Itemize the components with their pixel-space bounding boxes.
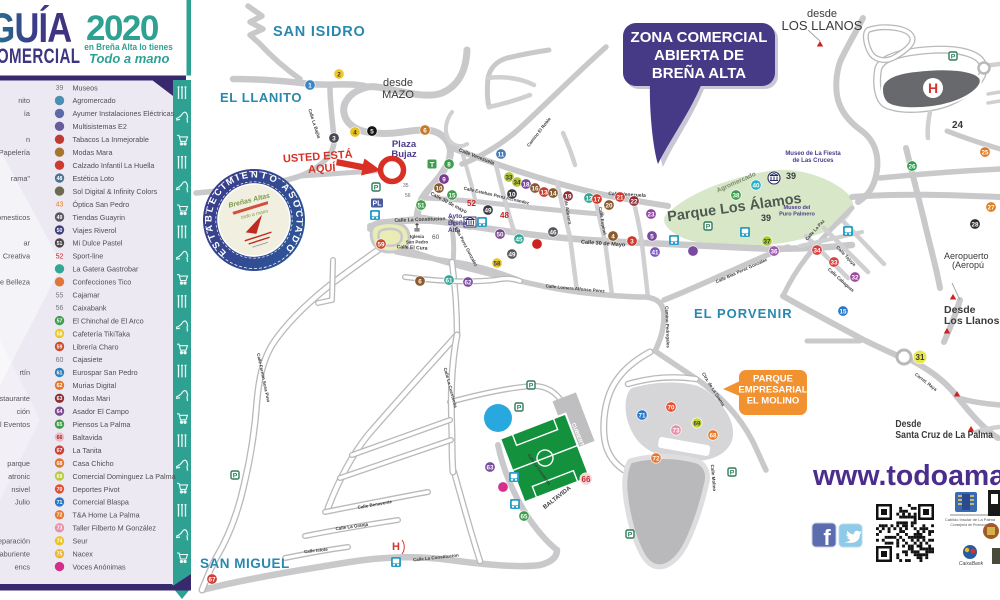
svg-text:64: 64 [57, 409, 63, 415]
svg-text:Casa Chicho: Casa Chicho [73, 459, 114, 468]
svg-text:Seur: Seur [73, 537, 89, 546]
svg-text:52: 52 [56, 253, 64, 260]
svg-text:Breña: Breña [448, 220, 467, 227]
svg-text:65: 65 [520, 513, 528, 520]
svg-text:Tabacos La Inmejorable: Tabacos La Inmejorable [73, 135, 149, 144]
svg-text:Tiendas Guayrin: Tiendas Guayrin [73, 213, 125, 222]
svg-text:Ayto.: Ayto. [448, 213, 464, 220]
svg-text:P: P [517, 405, 522, 412]
svg-text:33: 33 [830, 259, 838, 266]
svg-text:27: 27 [987, 204, 995, 211]
svg-text:atronic: atronic [8, 472, 30, 481]
svg-text:Modas Mari: Modas Mari [73, 394, 111, 403]
svg-text:Alta: Alta [448, 227, 461, 234]
svg-text:70: 70 [667, 404, 675, 411]
svg-text:CaixaBank: CaixaBank [959, 561, 984, 567]
svg-text:sas Restaurante: sas Restaurante [0, 394, 30, 403]
svg-text:Puro Palmero: Puro Palmero [779, 212, 815, 218]
svg-text:f: f [823, 525, 831, 550]
svg-text:Cafetería TikiTaka: Cafetería TikiTaka [73, 329, 131, 338]
svg-text:50: 50 [57, 228, 63, 234]
svg-text:nito: nito [18, 96, 30, 105]
svg-text:LOS LLANOS: LOS LLANOS [782, 18, 863, 33]
svg-text:18: 18 [522, 181, 530, 188]
svg-text:6: 6 [418, 278, 422, 285]
svg-text:Iglesia: Iglesia [410, 234, 425, 239]
svg-text:56: 56 [405, 193, 411, 199]
svg-text:39: 39 [56, 85, 64, 92]
svg-text:66: 66 [582, 475, 591, 484]
svg-text:Nacex: Nacex [73, 550, 94, 559]
svg-text:50: 50 [496, 231, 504, 238]
svg-text:Ayumer Instalaciones Eléctrica: Ayumer Instalaciones Eléctricas [73, 109, 175, 118]
svg-text:61: 61 [57, 370, 63, 376]
svg-text:41: 41 [651, 249, 659, 256]
svg-text:H: H [928, 80, 938, 96]
svg-text:13: 13 [540, 189, 548, 196]
svg-text:60: 60 [432, 234, 440, 241]
svg-text:P: P [628, 532, 633, 539]
svg-text:66: 66 [57, 435, 63, 441]
svg-text:20: 20 [605, 202, 613, 209]
svg-text:Cajamar: Cajamar [73, 291, 101, 300]
svg-text:24: 24 [952, 120, 964, 131]
svg-text:Santa Cruz de La Palma: Santa Cruz de La Palma [895, 429, 993, 441]
svg-text:61: 61 [445, 277, 453, 284]
svg-text:ía: ía [24, 109, 31, 118]
svg-text:EL MOLINO: EL MOLINO [747, 396, 800, 407]
svg-text:Taller Filberto M González: Taller Filberto M González [73, 524, 157, 533]
svg-text:ción: ción [17, 407, 30, 416]
svg-text:48: 48 [500, 211, 509, 220]
svg-text:17: 17 [593, 196, 601, 203]
svg-text:34: 34 [513, 179, 521, 186]
svg-text:56: 56 [56, 305, 64, 312]
svg-text:55: 55 [56, 292, 64, 299]
svg-text:Consejeria de Promocion: Consejeria de Promocion [950, 523, 989, 527]
svg-text:rama": rama" [11, 174, 31, 183]
svg-text:P: P [233, 473, 238, 480]
svg-text:P: P [706, 224, 711, 231]
svg-text:rtín: rtín [19, 368, 30, 377]
svg-text:Los Llanos: Los Llanos [944, 315, 1000, 327]
svg-text:63: 63 [57, 396, 63, 402]
svg-text:26: 26 [908, 163, 916, 170]
svg-text:Creativa: Creativa [3, 252, 31, 261]
svg-text:59: 59 [377, 241, 385, 248]
svg-text:4: 4 [611, 233, 615, 240]
svg-text:Óptica San Pedro: Óptica San Pedro [73, 200, 130, 209]
svg-text:35: 35 [403, 183, 409, 189]
svg-text:69: 69 [57, 474, 63, 480]
svg-text:6: 6 [423, 127, 427, 134]
svg-text:BREÑA ALTA: BREÑA ALTA [652, 64, 746, 82]
svg-text:SAN ISIDRO: SAN ISIDRO [273, 24, 366, 40]
svg-text:15: 15 [839, 308, 847, 315]
svg-text:T&A Home La Palma: T&A Home La Palma [73, 511, 140, 520]
svg-text:H: H [392, 541, 400, 553]
svg-text:11: 11 [498, 151, 505, 158]
svg-text:AQUÍ: AQUÍ [308, 161, 337, 176]
svg-text:36: 36 [770, 248, 778, 255]
svg-text:Viajes Riverol: Viajes Riverol [73, 226, 117, 235]
svg-text:23: 23 [647, 211, 655, 218]
svg-text:COMERCIAL: COMERCIAL [0, 43, 80, 67]
svg-text:e Belleza: e Belleza [0, 278, 31, 287]
svg-text:70: 70 [57, 487, 63, 493]
svg-text:74: 74 [57, 539, 63, 545]
svg-text:67: 67 [208, 576, 216, 583]
svg-text:ar: ar [24, 239, 31, 248]
svg-text:48: 48 [57, 176, 63, 182]
svg-text:52: 52 [467, 199, 476, 208]
svg-text:49: 49 [508, 251, 516, 258]
svg-text:Museos: Museos [73, 83, 99, 92]
svg-text:La Tanita: La Tanita [73, 446, 102, 455]
svg-text:72: 72 [652, 455, 660, 462]
svg-text:Cabildo Insular de La Palma: Cabildo Insular de La Palma [945, 517, 996, 522]
svg-text:EL PORVENIR: EL PORVENIR [694, 306, 793, 321]
svg-text:Asador El Campo: Asador El Campo [73, 407, 129, 416]
svg-text:Sport-line: Sport-line [73, 252, 104, 261]
svg-text:72: 72 [57, 513, 63, 519]
svg-text:49: 49 [484, 207, 492, 214]
svg-text:1: 1 [308, 82, 312, 89]
svg-text:Murias Digital: Murias Digital [73, 381, 117, 390]
svg-text:Multisistemas E2: Multisistemas E2 [73, 122, 127, 131]
svg-text:71: 71 [57, 500, 63, 506]
svg-text:10: 10 [508, 191, 516, 198]
svg-text:37: 37 [763, 238, 771, 245]
svg-text:Comercial Dominguez La Palma: Comercial Dominguez La Palma [73, 472, 176, 481]
svg-text:SAN MIGUEL: SAN MIGUEL [200, 556, 290, 571]
svg-text:es y reparación: es y reparación [0, 537, 30, 546]
svg-text:P: P [951, 54, 956, 61]
svg-text:9: 9 [442, 176, 446, 183]
svg-text:desde: desde [383, 77, 413, 89]
svg-text:58: 58 [57, 331, 63, 337]
svg-text:28: 28 [971, 221, 979, 228]
svg-text:Baltavida: Baltavida [73, 433, 103, 442]
svg-text:5: 5 [650, 233, 654, 240]
svg-text:69: 69 [693, 420, 701, 427]
svg-text:63: 63 [486, 464, 494, 471]
svg-text:60: 60 [56, 357, 64, 364]
svg-text:n: n [26, 135, 30, 144]
svg-text:62: 62 [57, 383, 63, 389]
svg-text:3: 3 [630, 238, 634, 245]
svg-text:10: 10 [435, 185, 443, 192]
svg-text:Calzado Infantil La Huella: Calzado Infantil La Huella [73, 161, 155, 170]
svg-text:EMPRESARIAL: EMPRESARIAL [738, 385, 807, 396]
svg-text:Cajasiete: Cajasiete [73, 355, 103, 364]
svg-text:EL LLANITO: EL LLANITO [220, 90, 302, 105]
svg-text:43: 43 [56, 202, 64, 209]
svg-text:5: 5 [370, 128, 374, 135]
svg-text:15: 15 [448, 192, 456, 199]
svg-text:Sol Digital & Infinity Colors: Sol Digital & Infinity Colors [73, 187, 158, 196]
svg-text:www.todoamano: www.todoamano [812, 460, 1000, 492]
svg-text:Papelería: Papelería [0, 148, 31, 157]
svg-text:40: 40 [752, 182, 760, 189]
svg-text:(Aeropú: (Aeropú [952, 260, 984, 270]
svg-text:62: 62 [464, 279, 472, 286]
svg-text:MAZO: MAZO [382, 89, 414, 101]
svg-text:al Eventos: al Eventos [0, 420, 30, 429]
svg-text:encs: encs [15, 562, 31, 571]
svg-text:49: 49 [57, 215, 63, 221]
svg-text:71: 71 [638, 412, 646, 419]
svg-text:P: P [730, 470, 735, 477]
svg-text:31: 31 [916, 353, 925, 362]
svg-text:46: 46 [549, 229, 557, 236]
svg-text:45: 45 [515, 236, 523, 243]
svg-text:ctrodomesticos: ctrodomesticos [0, 213, 30, 222]
svg-text:Confecciones Tico: Confecciones Tico [73, 278, 132, 287]
svg-text:Piensos La Palma: Piensos La Palma [73, 420, 131, 429]
svg-text:cos Taburiente: cos Taburiente [0, 550, 30, 559]
svg-text:P: P [374, 185, 379, 192]
svg-text:58: 58 [493, 260, 501, 267]
svg-text:57: 57 [57, 319, 63, 325]
svg-text:Voces Anónimas: Voces Anónimas [73, 562, 127, 571]
svg-text:73: 73 [672, 427, 680, 434]
svg-text:Estética Loto: Estética Loto [73, 174, 115, 183]
svg-text:Museo del: Museo del [784, 205, 811, 211]
svg-text:21: 21 [616, 194, 624, 201]
svg-text:Julio: Julio [15, 498, 30, 507]
svg-text:P: P [529, 383, 534, 390]
svg-text:19: 19 [564, 193, 572, 200]
svg-text:25: 25 [981, 149, 989, 156]
svg-text:38: 38 [732, 192, 740, 199]
svg-text:PARQUE: PARQUE [753, 374, 793, 385]
svg-text:Caixabank: Caixabank [73, 303, 107, 312]
svg-text:Comercial Blaspa: Comercial Blaspa [73, 498, 129, 507]
svg-text:PL: PL [373, 201, 383, 208]
svg-text:73: 73 [57, 526, 63, 532]
svg-text:Mi Dulce Pastel: Mi Dulce Pastel [73, 239, 123, 248]
svg-text:2: 2 [337, 71, 341, 78]
svg-text:de Las Cruces: de Las Cruces [792, 158, 834, 164]
svg-text:32: 32 [851, 274, 859, 281]
svg-text:San Pedro: San Pedro [406, 240, 429, 245]
svg-text:68: 68 [709, 432, 717, 439]
svg-text:Eurospar San Pedro: Eurospar San Pedro [73, 368, 138, 377]
svg-text:14: 14 [549, 190, 557, 197]
svg-text:Todo a mano: Todo a mano [89, 51, 169, 66]
svg-text:39: 39 [761, 213, 771, 223]
svg-text:Museo de La Fiesta: Museo de La Fiesta [785, 151, 841, 157]
svg-text:ABIERTA DE: ABIERTA DE [654, 47, 744, 64]
svg-text:51: 51 [417, 202, 425, 209]
svg-text:51: 51 [57, 241, 63, 247]
svg-text:75: 75 [57, 552, 63, 558]
svg-text:65: 65 [57, 422, 63, 428]
svg-text:16: 16 [531, 185, 539, 192]
svg-text:39: 39 [786, 171, 796, 181]
svg-text:Deportes Pivot: Deportes Pivot [73, 485, 120, 494]
svg-text:Agromercado: Agromercado [73, 96, 116, 105]
svg-text:El Chinchal de El Arco: El Chinchal de El Arco [73, 316, 144, 325]
svg-text:4: 4 [353, 129, 357, 136]
svg-text:parque: parque [7, 459, 30, 468]
svg-text:22: 22 [630, 198, 638, 205]
svg-text:59: 59 [57, 344, 63, 350]
svg-text:67: 67 [57, 448, 63, 454]
svg-text:nsivel: nsivel [11, 485, 30, 494]
svg-text:T: T [430, 160, 435, 169]
svg-text:ZONA COMERCIAL: ZONA COMERCIAL [631, 29, 768, 46]
svg-text:34: 34 [813, 247, 821, 254]
svg-text:La Gatera Gastrobar: La Gatera Gastrobar [73, 265, 140, 274]
svg-text:3: 3 [332, 135, 336, 142]
svg-text:Modas Mara: Modas Mara [73, 148, 113, 157]
svg-text:Librería Charo: Librería Charo [73, 342, 119, 351]
svg-text:8: 8 [447, 161, 451, 168]
svg-text:68: 68 [57, 461, 63, 467]
